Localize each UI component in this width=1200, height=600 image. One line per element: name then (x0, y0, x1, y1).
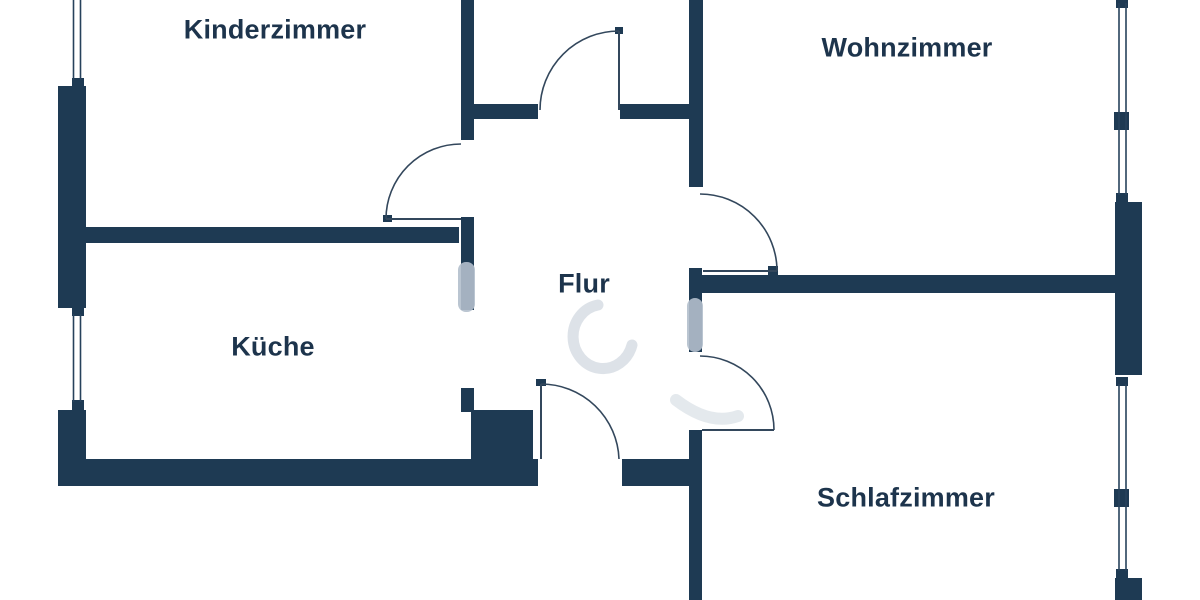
watermark-fragment (573, 305, 632, 369)
wall-segment (474, 104, 538, 119)
wall-segment (689, 430, 702, 600)
wall-segment (58, 86, 86, 308)
room-label-schlafzimmer: Schlafzimmer (817, 483, 995, 514)
watermark-fragment (676, 400, 738, 419)
floorplan-canvas: Kinderzimmer Wohnzimmer Küche Flur Schla… (0, 0, 1200, 600)
room-label-flur: Flur (558, 269, 610, 300)
room-label-wohnzimmer: Wohnzimmer (821, 33, 992, 64)
room-label-kinderzimmer: Kinderzimmer (184, 15, 366, 46)
watermark-fragment (687, 298, 703, 352)
wall-segment (461, 0, 474, 140)
wall-segment (1115, 578, 1142, 600)
kinderzimmer-door-swing-arc (386, 144, 461, 219)
wall-segment (689, 0, 703, 187)
floorplan-graphics (0, 0, 1200, 600)
wall-segment (700, 275, 1115, 293)
room-label-kueche: Küche (231, 332, 315, 363)
watermark-fragment (458, 262, 475, 312)
wohnzimmer-door-swing-arc (700, 194, 777, 271)
bath-door-swing-arc (540, 31, 619, 110)
entrance-door-swing-arc (541, 384, 619, 459)
wall-segment (1115, 202, 1142, 375)
wall-segment (471, 410, 533, 460)
wall-segment (461, 388, 474, 412)
wall-segment (58, 459, 538, 486)
wall-segment (620, 104, 689, 119)
wall-segment (78, 227, 459, 243)
